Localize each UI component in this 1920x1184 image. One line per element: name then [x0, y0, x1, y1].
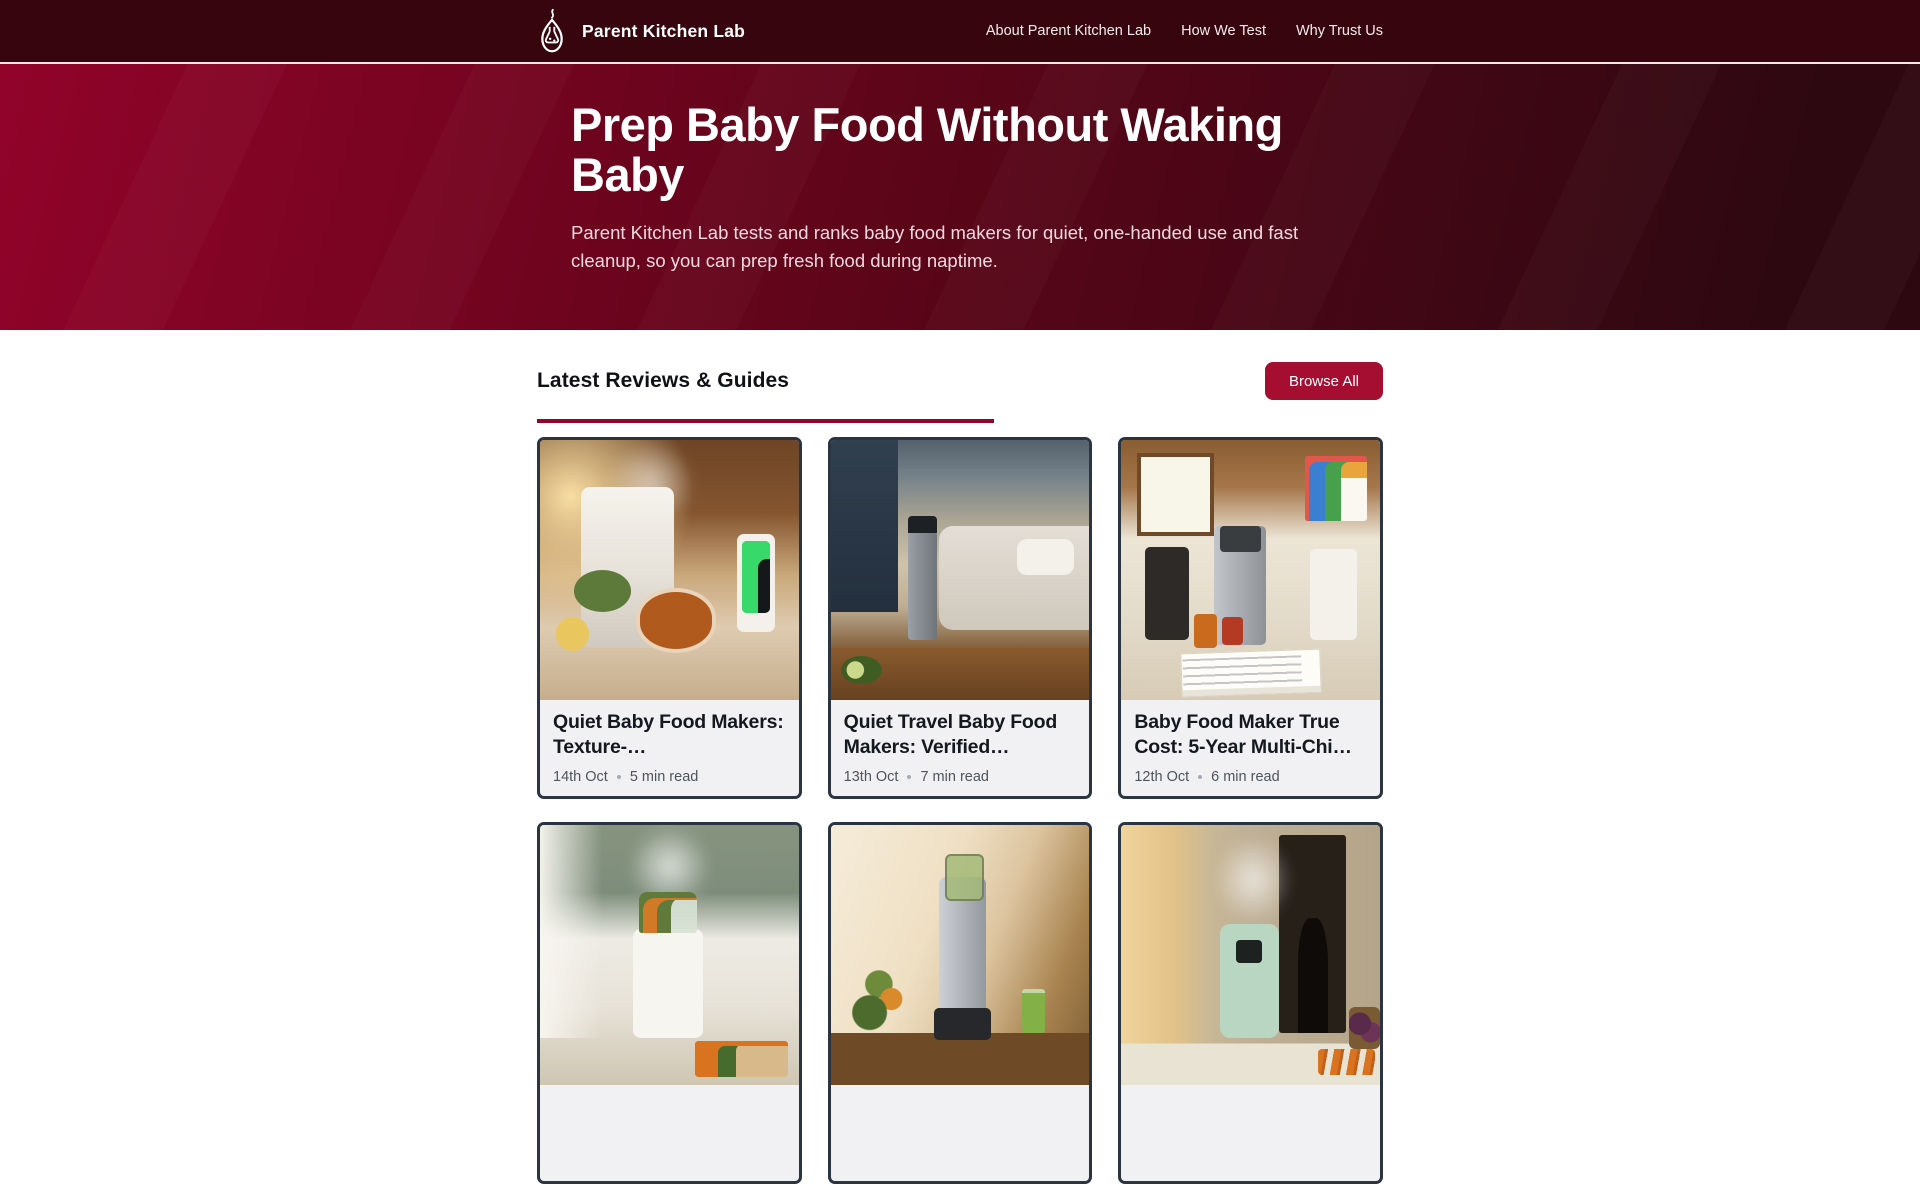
- article-card-mint-maker[interactable]: [1118, 822, 1383, 1184]
- curtain-decor: [831, 440, 898, 612]
- greens-decor: [574, 570, 631, 612]
- window-decor: [1137, 453, 1215, 536]
- article-image: [540, 825, 799, 1085]
- article-meta: 14th Oct 5 min read: [553, 769, 786, 785]
- article-read-time: 5 min read: [630, 769, 699, 785]
- article-meta: 12th Oct 6 min read: [1134, 769, 1367, 785]
- section-underline: [537, 419, 994, 423]
- article-image: [831, 825, 1090, 1085]
- article-date: 12th Oct: [1134, 769, 1189, 785]
- article-date: 13th Oct: [844, 769, 899, 785]
- meta-dot-icon: [907, 775, 911, 779]
- nav-how-we-test[interactable]: How We Test: [1181, 23, 1266, 39]
- puree-jar-decor: [1194, 614, 1217, 648]
- article-image: [1121, 440, 1380, 700]
- article-image: [540, 440, 799, 700]
- nav-why-trust-us[interactable]: Why Trust Us: [1296, 23, 1383, 39]
- hero-banner: Prep Baby Food Without Waking Baby Paren…: [0, 64, 1920, 330]
- article-title: Baby Food Maker True Cost: 5-Year Multi-…: [1134, 710, 1367, 761]
- juice-glass-decor: [1022, 989, 1045, 1033]
- article-card-true-cost[interactable]: Baby Food Maker True Cost: 5-Year Multi-…: [1118, 437, 1383, 799]
- article-card-body: Baby Food Maker True Cost: 5-Year Multi-…: [1121, 700, 1380, 785]
- kids-drawing-decor: [1305, 456, 1367, 521]
- hero-subtitle: Parent Kitchen Lab tests and ranks baby …: [571, 219, 1311, 275]
- cost-sheet-decor: [1180, 648, 1321, 697]
- carrots-decor: [1318, 1049, 1375, 1075]
- meta-dot-icon: [1198, 775, 1202, 779]
- main-nav: About Parent Kitchen Lab How We Test Why…: [986, 23, 1383, 39]
- article-card-steamer[interactable]: [537, 822, 802, 1184]
- article-read-time: 6 min read: [1211, 769, 1280, 785]
- article-title: Quiet Travel Baby Food Makers: Verified…: [844, 710, 1077, 761]
- baby-monitor-shape: [737, 534, 776, 633]
- steam-decor: [1214, 835, 1292, 923]
- article-image: [831, 440, 1090, 700]
- pillow-decor: [1017, 539, 1074, 575]
- juicer-shape: [939, 877, 986, 1023]
- nav-about[interactable]: About Parent Kitchen Lab: [986, 23, 1151, 39]
- chopping-board-decor: [695, 1041, 788, 1077]
- white-appliance-shape: [1310, 549, 1357, 640]
- brand[interactable]: Parent Kitchen Lab: [537, 8, 745, 54]
- article-title: Quiet Baby Food Makers: Texture-…: [553, 710, 786, 761]
- travel-blender-shape: [908, 531, 936, 640]
- brand-name: Parent Kitchen Lab: [582, 21, 745, 42]
- curtain-decor: [540, 825, 602, 1038]
- article-card-quiet-travel-makers[interactable]: Quiet Travel Baby Food Makers: Verified……: [828, 437, 1093, 799]
- hero-title: Prep Baby Food Without Waking Baby: [571, 100, 1383, 201]
- section-title: Latest Reviews & Guides: [537, 369, 789, 393]
- article-grid: Quiet Baby Food Makers: Texture-… 14th O…: [537, 437, 1383, 1184]
- article-card-quiet-baby-food-makers[interactable]: Quiet Baby Food Makers: Texture-… 14th O…: [537, 437, 802, 799]
- article-meta: 13th Oct 7 min read: [844, 769, 1077, 785]
- steamer-shape: [633, 929, 703, 1038]
- article-card-juicer[interactable]: [828, 822, 1093, 1184]
- article-image: [1121, 825, 1380, 1085]
- puree-jar-decor: [1222, 617, 1243, 646]
- produce-decor: [851, 965, 913, 1033]
- article-date: 14th Oct: [553, 769, 608, 785]
- mint-food-maker-shape: [1220, 924, 1279, 1038]
- veggie-basket-decor: [1349, 1007, 1380, 1049]
- meta-dot-icon: [617, 775, 621, 779]
- lemon-decor: [556, 617, 590, 651]
- article-card-body: Quiet Baby Food Makers: Texture-… 14th O…: [540, 700, 799, 785]
- flask-logo-icon: [537, 8, 567, 54]
- site-header: Parent Kitchen Lab About Parent Kitchen …: [0, 0, 1920, 64]
- dark-appliance-shape: [1145, 547, 1189, 641]
- article-card-body: Quiet Travel Baby Food Makers: Verified……: [831, 700, 1090, 785]
- latest-section: Latest Reviews & Guides Browse All Quiet…: [537, 330, 1383, 1184]
- browse-all-button[interactable]: Browse All: [1265, 362, 1383, 400]
- puree-bowl-shape: [636, 588, 716, 653]
- article-read-time: 7 min read: [920, 769, 989, 785]
